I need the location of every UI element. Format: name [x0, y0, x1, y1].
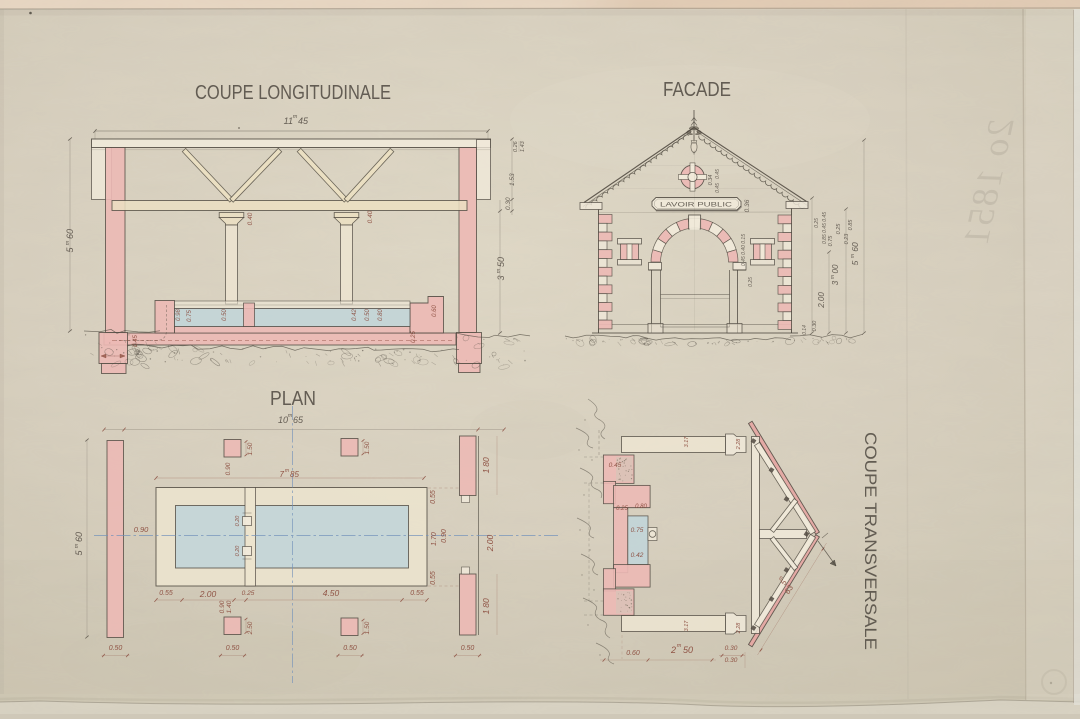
- svg-text:0.98: 0.98: [176, 309, 182, 321]
- svg-text:00: 00: [831, 264, 840, 273]
- svg-text:0.50: 0.50: [226, 645, 240, 652]
- svg-text:0.90: 0.90: [441, 529, 448, 543]
- svg-text:3.17: 3.17: [684, 620, 690, 632]
- svg-text:0.25: 0.25: [411, 331, 417, 343]
- svg-text:0.75: 0.75: [828, 235, 834, 247]
- svg-text:0.14: 0.14: [802, 325, 808, 335]
- svg-text:0.42: 0.42: [352, 309, 358, 321]
- svg-text:0.55: 0.55: [430, 571, 437, 585]
- svg-text:0.20: 0.20: [235, 515, 241, 527]
- svg-text:0.50: 0.50: [365, 309, 371, 321]
- svg-text:m: m: [293, 114, 298, 120]
- svg-text:0.55: 0.55: [410, 590, 424, 597]
- svg-text:60: 60: [65, 229, 75, 239]
- svg-text:0.40: 0.40: [247, 212, 254, 225]
- svg-text:0.45: 0.45: [715, 169, 721, 179]
- svg-text:0.26: 0.26: [513, 140, 519, 152]
- svg-text:3: 3: [831, 280, 840, 285]
- svg-text:2.00: 2.00: [817, 292, 826, 309]
- svg-text:45: 45: [298, 116, 309, 126]
- svg-text:0.50: 0.50: [461, 645, 475, 652]
- svg-text:65: 65: [293, 415, 304, 425]
- svg-text:3.17: 3.17: [684, 436, 690, 448]
- svg-text:m: m: [65, 240, 71, 245]
- svg-text:0.30: 0.30: [505, 197, 512, 210]
- svg-text:PLAN: PLAN: [270, 387, 316, 410]
- svg-text:0.34: 0.34: [708, 175, 714, 186]
- svg-text:1.50: 1.50: [364, 441, 371, 454]
- svg-text:0.25: 0.25: [616, 506, 628, 512]
- svg-text:0.60: 0.60: [432, 305, 438, 317]
- svg-text:0.25: 0.25: [836, 223, 842, 235]
- svg-text:85: 85: [290, 470, 299, 479]
- svg-text:m: m: [677, 643, 682, 649]
- svg-text:5: 5: [850, 260, 860, 265]
- svg-text:0.60: 0.60: [626, 650, 640, 657]
- svg-text:0.75: 0.75: [631, 527, 644, 534]
- svg-text:1.53: 1.53: [509, 173, 516, 186]
- svg-text:2.00: 2.00: [199, 589, 217, 599]
- svg-text:LAVOIR PUBLIC: LAVOIR PUBLIC: [660, 202, 732, 209]
- svg-text:10: 10: [278, 415, 288, 425]
- svg-text:50: 50: [683, 645, 693, 655]
- svg-text:0.80: 0.80: [635, 504, 647, 510]
- svg-text:1.70: 1.70: [431, 532, 438, 546]
- svg-text:0.45: 0.45: [133, 335, 139, 347]
- svg-text:50: 50: [496, 257, 506, 267]
- svg-text:0.36: 0.36: [744, 199, 751, 212]
- svg-text:0.90: 0.90: [219, 600, 226, 613]
- svg-text:COUPE LONGITUDINALE: COUPE LONGITUDINALE: [195, 82, 391, 104]
- svg-text:0.90: 0.90: [134, 525, 149, 534]
- svg-text:0.50: 0.50: [222, 309, 228, 321]
- svg-text:0.55: 0.55: [159, 590, 173, 597]
- svg-text:1.50: 1.50: [247, 442, 254, 455]
- svg-text:m: m: [288, 413, 293, 419]
- svg-text:1.50: 1.50: [364, 621, 371, 634]
- svg-text:0.50: 0.50: [343, 645, 357, 652]
- svg-text:0.30: 0.30: [812, 320, 818, 332]
- svg-text:60: 60: [850, 242, 860, 252]
- svg-text:1: 1: [481, 609, 491, 614]
- svg-text:0.45: 0.45: [715, 183, 721, 193]
- svg-text:80: 80: [481, 598, 491, 608]
- svg-text:0.25: 0.25: [814, 218, 820, 228]
- svg-text:0.80: 0.80: [378, 309, 384, 321]
- svg-text:60: 60: [74, 532, 84, 542]
- svg-text:1.43: 1.43: [520, 140, 526, 152]
- svg-text:0.40: 0.40: [367, 210, 374, 223]
- svg-text:1: 1: [481, 468, 491, 473]
- svg-text:0.25: 0.25: [242, 590, 255, 597]
- svg-text:m: m: [74, 543, 80, 548]
- svg-text:2.28: 2.28: [736, 622, 742, 635]
- svg-text:2: 2: [670, 645, 676, 655]
- svg-text:7: 7: [280, 470, 285, 479]
- svg-text:0.85: 0.85: [848, 219, 854, 231]
- svg-text:0.45 0.40 0.15: 0.45 0.40 0.15: [741, 234, 747, 266]
- svg-text:m: m: [850, 254, 856, 258]
- svg-text:4.50: 4.50: [323, 588, 340, 598]
- svg-text:1.40: 1.40: [226, 600, 233, 613]
- svg-text:COUPE TRANSVERSALE: COUPE TRANSVERSALE: [861, 432, 880, 650]
- svg-text:m: m: [496, 268, 502, 273]
- svg-text:0.30: 0.30: [725, 645, 738, 652]
- svg-text:0.20: 0.20: [235, 545, 241, 557]
- svg-text:80: 80: [481, 457, 491, 467]
- svg-text:0.90: 0.90: [225, 462, 232, 475]
- svg-text:0.23: 0.23: [844, 233, 850, 245]
- svg-text:2.00: 2.00: [485, 534, 495, 552]
- svg-text:0.42: 0.42: [631, 552, 644, 559]
- svg-text:0.75: 0.75: [187, 310, 193, 322]
- svg-text:3: 3: [496, 275, 506, 280]
- svg-text:0.50: 0.50: [109, 645, 123, 652]
- svg-text:0.55: 0.55: [430, 490, 437, 504]
- svg-text:2.28: 2.28: [736, 438, 742, 451]
- svg-text:0.45: 0.45: [609, 462, 622, 469]
- svg-text:0.30: 0.30: [725, 657, 738, 664]
- svg-text:m: m: [830, 275, 836, 279]
- svg-text:0.25: 0.25: [748, 277, 754, 287]
- svg-text:11: 11: [284, 116, 293, 126]
- svg-text:2.50: 2.50: [247, 621, 254, 635]
- svg-text:FACADE: FACADE: [663, 79, 731, 101]
- svg-text:0.85 0.45 0.45: 0.85 0.45 0.45: [822, 212, 828, 244]
- svg-text:m: m: [285, 468, 289, 474]
